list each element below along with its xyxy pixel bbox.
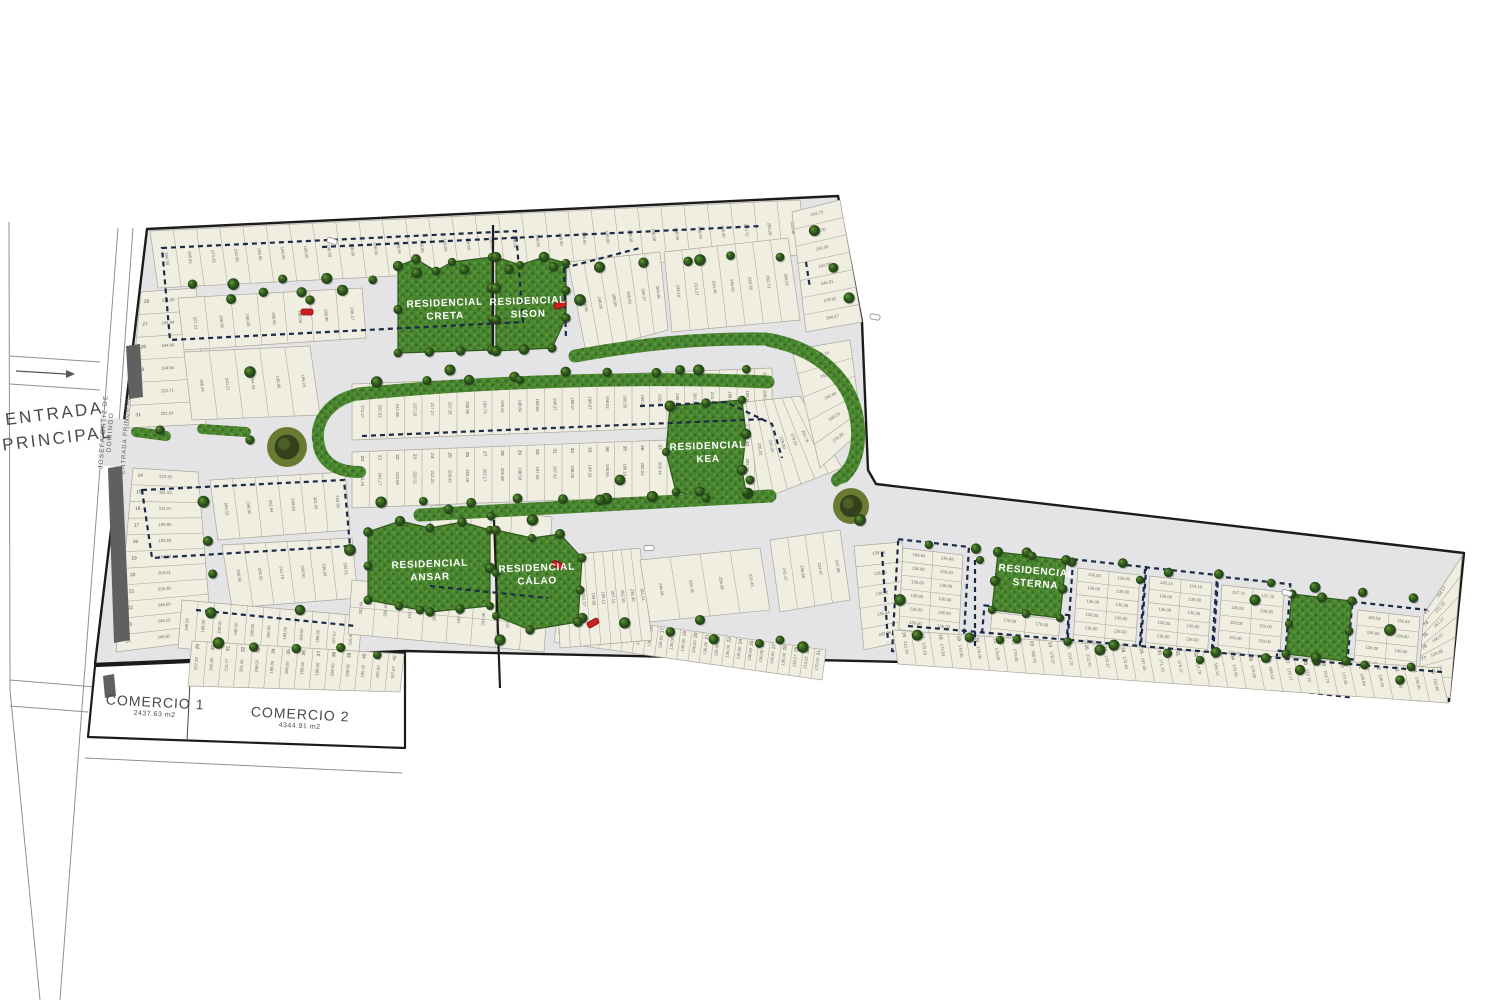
lot-block-mid-east-a: 246.04325.78256.06221.43 xyxy=(640,548,770,622)
svg-text:27: 27 xyxy=(142,321,148,327)
svg-text:265.44: 265.44 xyxy=(382,603,388,617)
lot-block-mid-east-b: 241.37256.88224.97167.98 xyxy=(770,530,850,612)
svg-text:206.50: 206.50 xyxy=(622,395,627,408)
svg-text:199.19: 199.19 xyxy=(622,463,627,476)
hedge-strip xyxy=(202,429,246,432)
svg-text:190.90: 190.90 xyxy=(159,522,173,527)
svg-text:198.73: 198.73 xyxy=(482,401,487,414)
svg-text:227.26: 227.26 xyxy=(412,403,417,416)
svg-text:211.07: 211.07 xyxy=(159,506,172,511)
svg-text:198.02: 198.02 xyxy=(605,396,610,409)
svg-text:23: 23 xyxy=(411,454,417,460)
svg-text:181.53: 181.53 xyxy=(159,490,173,495)
svg-text:222.51: 222.51 xyxy=(412,471,417,484)
svg-text:34: 34 xyxy=(271,648,278,654)
svg-text:29: 29 xyxy=(195,643,201,649)
svg-text:34: 34 xyxy=(604,446,610,452)
svg-text:31: 31 xyxy=(135,412,141,418)
svg-text:198.27: 198.27 xyxy=(552,398,557,411)
svg-text:18: 18 xyxy=(133,539,139,545)
svg-text:25: 25 xyxy=(446,452,452,458)
svg-text:17: 17 xyxy=(134,522,140,528)
svg-text:32: 32 xyxy=(569,448,575,454)
svg-text:240.08: 240.08 xyxy=(395,472,400,485)
svg-text:26: 26 xyxy=(464,452,470,458)
park-label-kea: RESIDENCIAL KEA xyxy=(660,438,757,467)
svg-text:21: 21 xyxy=(129,588,135,594)
car-white-icon xyxy=(870,314,881,321)
svg-text:31: 31 xyxy=(551,448,557,454)
svg-text:31: 31 xyxy=(225,645,231,651)
svg-text:207.08: 207.08 xyxy=(480,612,486,626)
car-red-icon xyxy=(301,309,313,315)
svg-text:197.65: 197.65 xyxy=(535,467,540,480)
park-label-sison: RESIDENCIAL SISON xyxy=(482,293,575,322)
svg-text:21: 21 xyxy=(376,455,382,461)
svg-text:37: 37 xyxy=(316,650,323,656)
park-label-calao: RESIDENCIAL CÁLAO xyxy=(489,560,586,589)
svg-text:200.95: 200.95 xyxy=(465,401,470,414)
svg-text:199.24: 199.24 xyxy=(500,400,505,413)
svg-text:197.62: 197.62 xyxy=(552,466,557,479)
svg-text:282.68: 282.68 xyxy=(358,601,364,615)
svg-text:29: 29 xyxy=(516,450,522,456)
outside-street-line xyxy=(10,706,88,712)
svg-text:200.03: 200.03 xyxy=(640,463,645,476)
svg-text:198.65: 198.65 xyxy=(605,464,610,477)
svg-text:35: 35 xyxy=(621,446,627,452)
svg-text:205.49: 205.49 xyxy=(465,469,470,482)
svg-text:30: 30 xyxy=(534,449,540,455)
svg-text:24: 24 xyxy=(429,453,435,459)
svg-text:40: 40 xyxy=(361,653,368,659)
svg-text:33: 33 xyxy=(586,447,592,453)
outside-street-line xyxy=(85,758,402,773)
street-direction-arrow xyxy=(16,371,66,374)
park-green-square xyxy=(1286,594,1352,661)
svg-text:194.94: 194.94 xyxy=(161,342,175,348)
svg-text:256.53: 256.53 xyxy=(377,405,382,418)
svg-text:198.29: 198.29 xyxy=(587,465,592,478)
svg-text:217.27: 217.27 xyxy=(430,403,435,416)
lot-block-sw-b: 206.50206.50241.70198.00198.00192.51 xyxy=(222,538,358,608)
svg-text:198.06: 198.06 xyxy=(570,465,575,478)
svg-text:26: 26 xyxy=(144,299,150,305)
svg-text:32: 32 xyxy=(240,646,246,652)
outside-street-line xyxy=(9,222,40,1000)
outside-street-line xyxy=(10,384,100,390)
svg-text:198.57: 198.57 xyxy=(570,397,575,410)
svg-text:201.04: 201.04 xyxy=(161,410,175,416)
svg-text:198.07: 198.07 xyxy=(587,397,592,410)
lot-block-nw-b: 198.24240.21254.33196.90196.24 xyxy=(184,346,320,420)
svg-text:220.35: 220.35 xyxy=(159,474,173,480)
svg-text:20: 20 xyxy=(130,572,136,578)
svg-text:194.94: 194.94 xyxy=(161,365,175,371)
svg-text:209.45: 209.45 xyxy=(447,470,452,483)
outside-street-line xyxy=(10,356,100,362)
svg-text:274.47: 274.47 xyxy=(360,405,365,418)
svg-text:200.98: 200.98 xyxy=(500,468,505,481)
roundabout xyxy=(827,482,875,530)
svg-text:202.17: 202.17 xyxy=(482,469,487,482)
svg-text:39: 39 xyxy=(346,652,353,658)
svg-text:28: 28 xyxy=(499,450,505,456)
svg-text:242.17: 242.17 xyxy=(377,473,382,486)
svg-text:198.84: 198.84 xyxy=(535,399,540,412)
svg-text:198.84: 198.84 xyxy=(517,399,522,412)
svg-text:20: 20 xyxy=(359,456,365,462)
svg-text:231.89: 231.89 xyxy=(162,297,176,303)
site-plan-svg: 204.38205.61273.55242.00198.00198.00198.… xyxy=(0,0,1500,1000)
street-arrow-head xyxy=(66,370,75,378)
site-plan-map: 204.38205.61273.55242.00198.00198.00198.… xyxy=(0,0,1500,1000)
svg-text:19: 19 xyxy=(131,555,137,561)
park-label-creta: RESIDENCIAL CRETA xyxy=(395,295,496,324)
roundabout xyxy=(261,421,313,473)
svg-text:241.58: 241.58 xyxy=(395,404,400,417)
svg-text:38: 38 xyxy=(331,651,338,657)
svg-text:204.51: 204.51 xyxy=(158,570,172,576)
svg-text:222.71: 222.71 xyxy=(161,388,175,394)
park-label-ansar: RESIDENCIAL ANSAR xyxy=(378,556,483,586)
svg-text:28: 28 xyxy=(140,344,146,350)
svg-text:213.22: 213.22 xyxy=(430,471,435,484)
outside-street-line xyxy=(10,680,95,687)
car-white-icon xyxy=(644,545,654,551)
svg-text:14: 14 xyxy=(137,473,143,479)
svg-text:207.35: 207.35 xyxy=(447,402,452,415)
svg-text:42: 42 xyxy=(392,655,399,661)
svg-text:27: 27 xyxy=(481,451,487,457)
svg-text:139.88: 139.88 xyxy=(591,592,597,606)
svg-text:198.58: 198.58 xyxy=(517,467,522,480)
svg-text:22: 22 xyxy=(394,454,400,460)
svg-text:193.83: 193.83 xyxy=(158,538,172,543)
svg-text:35: 35 xyxy=(286,649,293,655)
svg-text:36: 36 xyxy=(639,445,645,451)
svg-text:16: 16 xyxy=(135,506,141,512)
